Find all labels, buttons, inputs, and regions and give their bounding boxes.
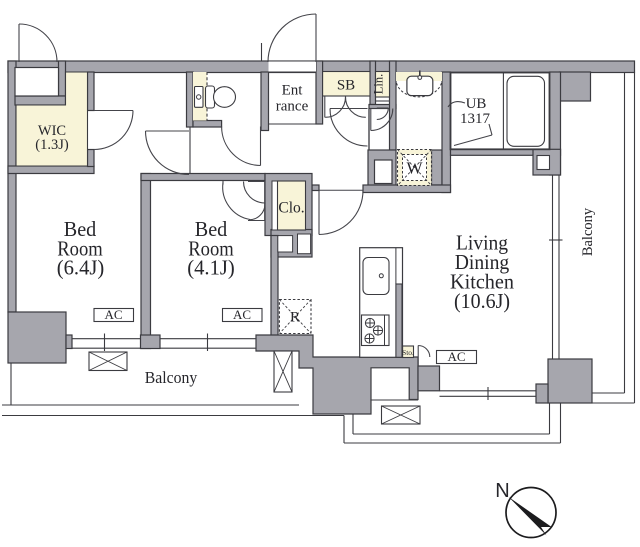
svg-text:(1.3J): (1.3J)	[35, 137, 69, 153]
svg-text:(6.4J): (6.4J)	[57, 256, 105, 280]
svg-text:Balcony: Balcony	[580, 207, 596, 256]
svg-text:Clo.: Clo.	[278, 200, 304, 217]
svg-text:W: W	[406, 159, 423, 178]
svg-text:(10.6J): (10.6J)	[454, 289, 510, 313]
svg-text:1317: 1317	[460, 111, 491, 127]
svg-text:SB: SB	[337, 78, 355, 94]
svg-text:AC: AC	[104, 307, 122, 322]
svg-text:Sto.: Sto.	[402, 348, 414, 357]
svg-text:Balcony: Balcony	[145, 368, 198, 387]
svg-text:Ent: Ent	[282, 83, 304, 99]
svg-text:(4.1J): (4.1J)	[187, 256, 235, 280]
svg-text:R: R	[290, 310, 300, 326]
svg-text:rance: rance	[276, 99, 309, 115]
svg-text:UB: UB	[466, 96, 487, 112]
svg-text:N: N	[495, 480, 509, 502]
svg-text:AC: AC	[447, 349, 465, 364]
svg-text:AC: AC	[233, 307, 251, 322]
svg-text:Lin.: Lin.	[372, 74, 386, 94]
